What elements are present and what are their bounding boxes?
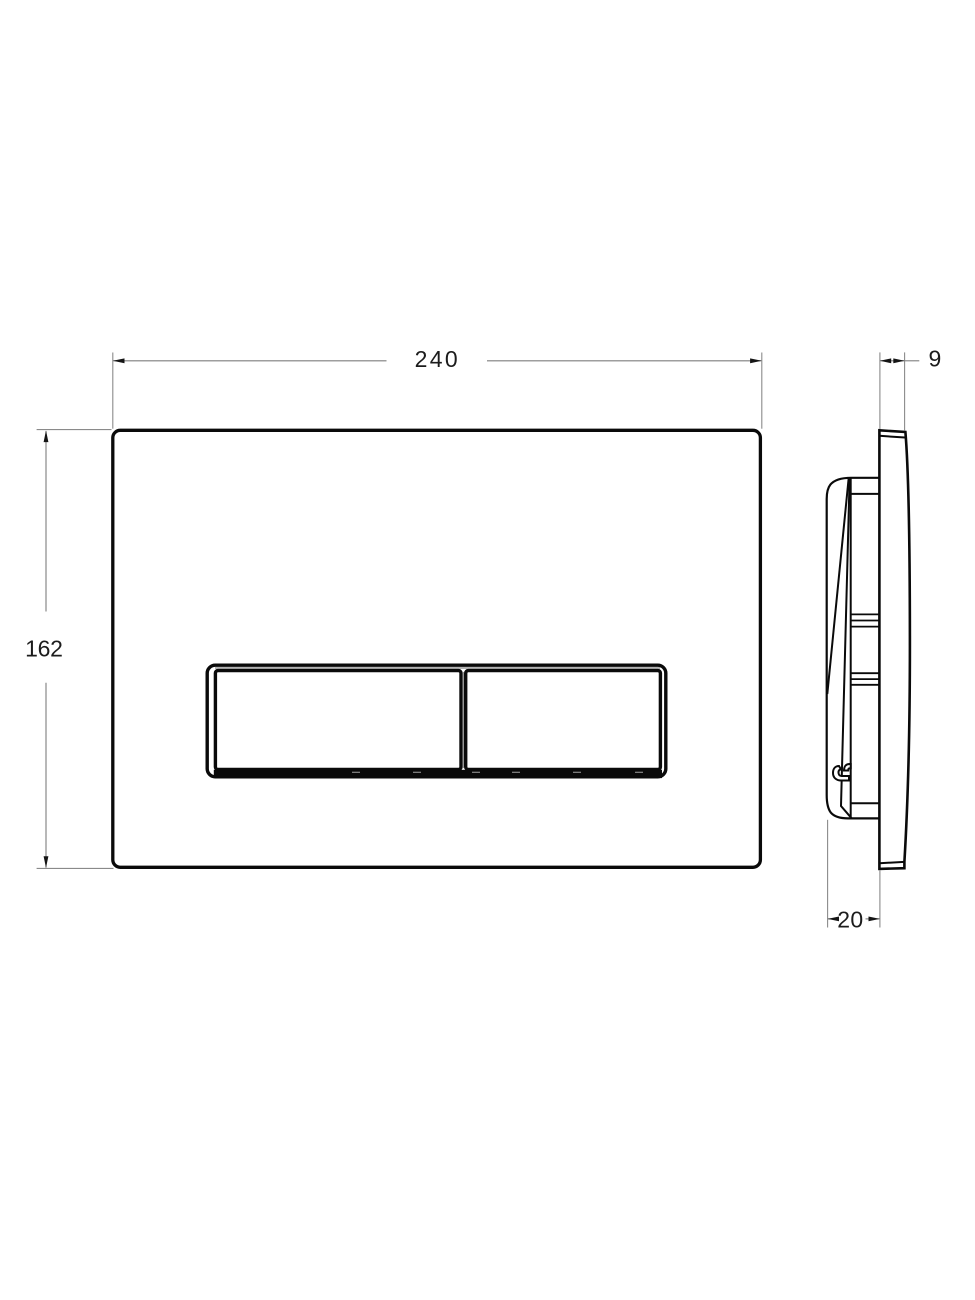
svg-text:240: 240 — [415, 346, 460, 372]
svg-text:20: 20 — [837, 906, 863, 932]
svg-text:162: 162 — [25, 636, 62, 662]
svg-text:9: 9 — [929, 345, 942, 371]
